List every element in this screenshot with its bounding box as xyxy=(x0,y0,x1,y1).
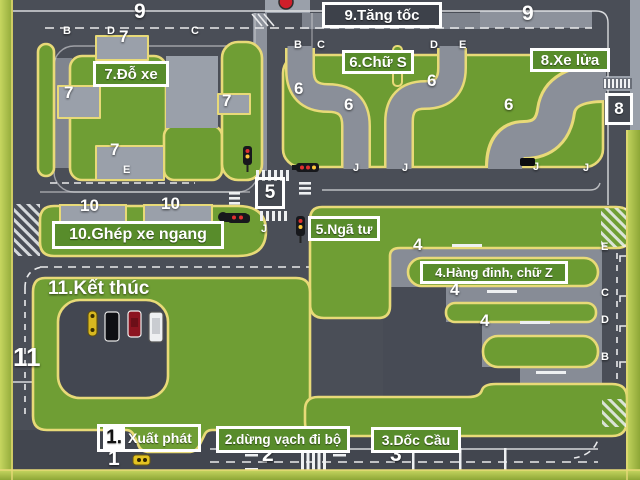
route-number: 4 xyxy=(480,312,489,329)
car-icon xyxy=(105,312,119,341)
car-icon xyxy=(128,311,141,337)
bay-letter: J xyxy=(533,162,539,173)
route-number: 6 xyxy=(427,72,436,89)
route-number: 6 xyxy=(344,96,353,113)
station-1-name: Xuất phát xyxy=(128,430,192,446)
bay-letter: J xyxy=(353,163,359,174)
station-label-5: 5.Ngã tư xyxy=(308,216,380,241)
bay-letter: E xyxy=(123,165,130,176)
hatched-area xyxy=(14,204,40,256)
bay-letter: J xyxy=(583,163,589,174)
station-label-7: 7.Đỗ xe xyxy=(93,61,169,87)
bay-letter: C xyxy=(601,288,609,299)
bay-letter: J xyxy=(402,163,408,174)
station-label-10: 10.Ghép xe ngang xyxy=(52,221,224,249)
route-number: 10 xyxy=(161,195,180,212)
van-icon xyxy=(149,312,163,342)
station-label-8: 8.Xe lửa xyxy=(530,48,610,72)
route-number: 6 xyxy=(294,80,303,97)
signal-ball-icon xyxy=(279,0,293,9)
route-number: 4 xyxy=(413,236,422,253)
station-1-number: 1. xyxy=(103,426,125,450)
station-label-11: 11.Kết thúc xyxy=(48,278,149,300)
bay-letter: B xyxy=(601,352,609,363)
route-number: 7 xyxy=(119,28,128,45)
intersection-sign: 5 xyxy=(255,177,285,209)
bay-letter: C xyxy=(191,26,199,37)
railway-sign: 8 xyxy=(605,93,633,125)
route-number: 11 xyxy=(13,344,41,370)
station-label-4: 4.Hàng đinh, chữ Z xyxy=(420,261,568,284)
route-number: 10 xyxy=(80,197,99,214)
bay-letter: C xyxy=(317,40,325,51)
bay-letter: D xyxy=(601,315,609,326)
bay-letter: B xyxy=(63,26,71,37)
route-number: 9 xyxy=(522,3,534,24)
station-label-2: 2.dừng vạch đi bộ xyxy=(216,426,350,453)
route-number: 7 xyxy=(222,92,231,109)
bay-letter: J xyxy=(261,224,267,235)
bay-letter: E xyxy=(459,40,466,51)
route-number: 7 xyxy=(110,141,119,158)
railway-crossing-icon xyxy=(603,78,632,89)
route-number: 9 xyxy=(134,1,146,22)
route-number: 6 xyxy=(504,96,513,113)
bay-letter: B xyxy=(294,40,302,51)
station-label-1: 1. Xuất phát xyxy=(97,424,201,452)
station-label-6: 6.Chữ S xyxy=(342,50,414,74)
station-label-9: 9.Tăng tốc xyxy=(322,2,442,28)
car-icon xyxy=(133,455,150,465)
motorbike-icon xyxy=(88,311,97,336)
driving-course-map: 9 9 7 7 7 7 6 6 6 6 10 10 4 4 4 11 1 2 3… xyxy=(0,0,640,480)
station-label-3: 3.Dốc Cầu xyxy=(371,427,461,453)
route-number: 7 xyxy=(64,84,73,101)
hatched-area xyxy=(602,399,627,427)
bay-letter: E xyxy=(601,242,608,253)
bay-letter: D xyxy=(430,40,438,51)
bay-letter: D xyxy=(107,26,115,37)
